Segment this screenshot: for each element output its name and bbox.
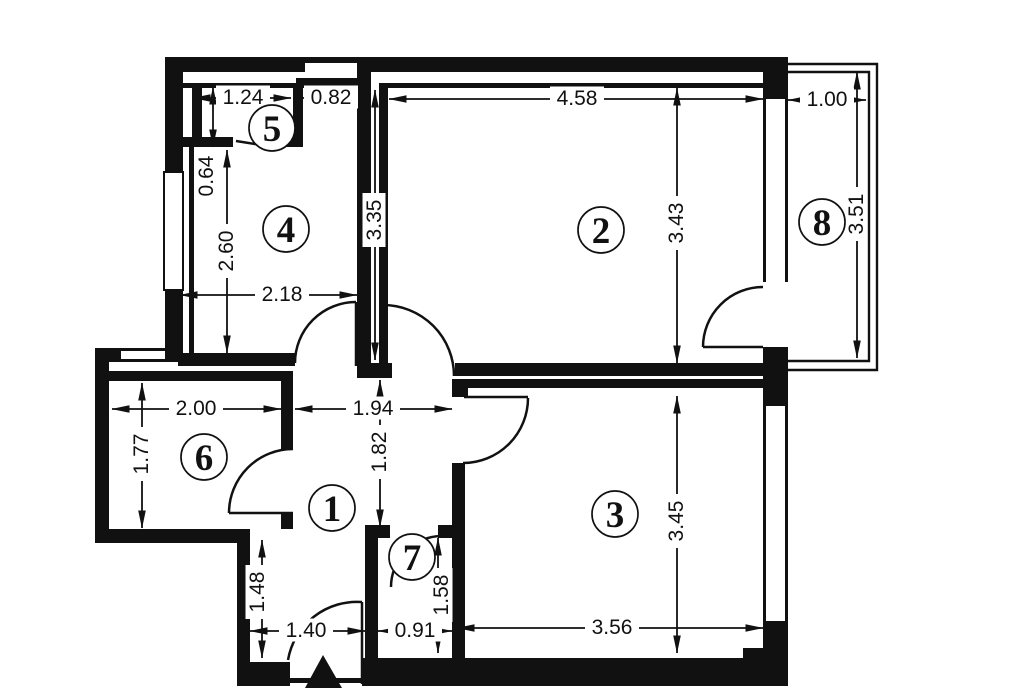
- door-swing-arc: [703, 287, 763, 347]
- dimension-label: 1.40: [286, 619, 327, 642]
- wall-segment: [462, 379, 763, 388]
- dimension-label: 1.77: [130, 434, 153, 475]
- wall-segment: [455, 363, 763, 376]
- room-number-8: 8: [813, 203, 832, 244]
- dimension-label: 3.45: [665, 501, 688, 542]
- window: [765, 98, 786, 283]
- wall-segment: [365, 525, 390, 538]
- dimension-label: 2.60: [215, 231, 238, 272]
- wall-segment: [452, 379, 468, 397]
- dimension-label: 0.91: [395, 619, 436, 642]
- entrance-arrow-icon: [305, 655, 342, 688]
- entrance: [305, 655, 342, 688]
- door-opening: [763, 282, 788, 347]
- wall-segment: [237, 662, 290, 686]
- door-swing-arc: [295, 302, 356, 363]
- wall-segment: [165, 288, 183, 353]
- wall-segment: [281, 513, 293, 529]
- wall-segment: [109, 371, 293, 381]
- dimension-label: 0.82: [311, 86, 352, 109]
- wall-segment: [357, 363, 392, 378]
- room-number-5: 5: [263, 109, 282, 150]
- room-number-4: 4: [277, 210, 296, 251]
- dimension-label: 3.51: [845, 194, 868, 235]
- door-swing-arc: [463, 398, 528, 463]
- wall-segment: [95, 348, 109, 543]
- dimension-label: 1.24: [223, 86, 264, 109]
- wall-segment: [438, 525, 463, 538]
- wall-segment: [178, 353, 295, 366]
- room-number-1: 1: [323, 489, 342, 530]
- dimension-label: 1.94: [353, 397, 394, 420]
- door-swing-arc: [229, 449, 293, 513]
- door-swing-arc: [383, 305, 454, 376]
- dimension-label: 4.58: [557, 87, 598, 110]
- wall-segment: [165, 57, 183, 174]
- room-number-3: 3: [606, 495, 625, 536]
- dimension-label: 2.00: [176, 397, 217, 420]
- wall-segment: [95, 529, 250, 543]
- floor-plan-drawing: 1.240.824.581.000.642.602.183.353.433.51…: [0, 0, 1024, 688]
- wall-segment: [165, 57, 305, 72]
- window: [765, 405, 786, 622]
- room-number-7: 7: [403, 538, 422, 579]
- room-number-2: 2: [592, 211, 611, 252]
- dimension-label: 1.82: [368, 432, 391, 473]
- room-number-6: 6: [195, 438, 214, 479]
- dimension-label: 1.00: [807, 88, 848, 111]
- dimension-label: 2.18: [262, 283, 303, 306]
- wall-segment: [365, 525, 378, 668]
- wall-segment: [367, 57, 788, 72]
- dimension-label: 3.56: [592, 616, 633, 639]
- dimension-label: 1.48: [246, 572, 269, 613]
- wall-segment: [362, 658, 763, 686]
- wall-segment: [293, 83, 303, 147]
- wall-segment: [305, 57, 367, 63]
- wall-openings: [763, 282, 788, 347]
- window: [164, 172, 183, 290]
- wall-segment: [180, 137, 233, 147]
- wall-segment: [743, 648, 763, 658]
- floor-plan-canvas: 1.240.824.581.000.642.602.183.353.433.51…: [0, 0, 1024, 688]
- dimension-label: 0.64: [195, 155, 218, 196]
- dimension-label: 3.35: [363, 200, 386, 241]
- wall-segment: [452, 463, 465, 673]
- window: [120, 350, 166, 360]
- dimension-label: 1.58: [430, 575, 453, 616]
- wall-segment: [281, 381, 293, 449]
- wall-segment: [189, 147, 194, 353]
- dimension-label: 3.43: [665, 203, 688, 244]
- room-markers: 12345678: [181, 105, 845, 580]
